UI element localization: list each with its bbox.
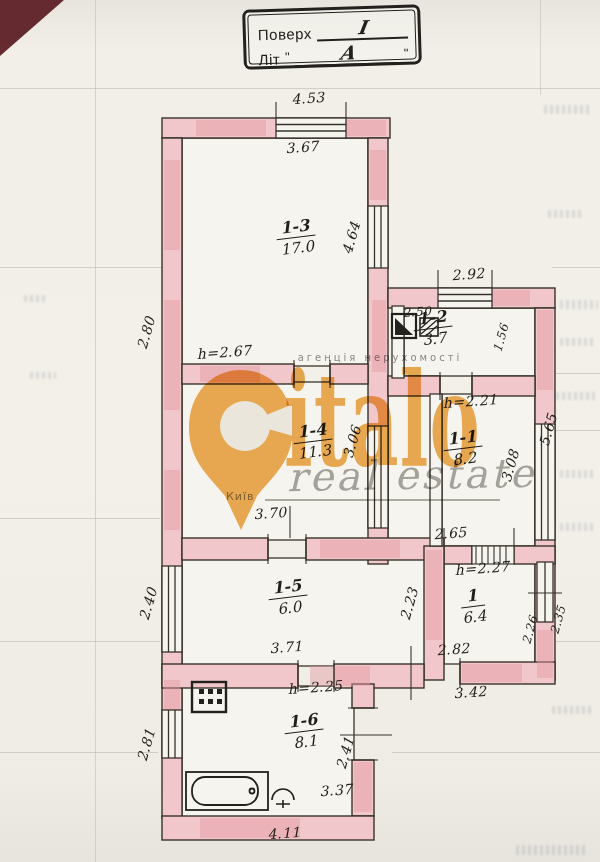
stamp-quote-open: " <box>285 47 290 67</box>
stamp-quote-close: " <box>404 44 409 64</box>
dim-room16-inner: 3.37 <box>319 781 353 799</box>
room-id: 1 <box>459 585 485 609</box>
dim-room1-bottom-outer: 3.42 <box>453 683 487 701</box>
watermark-rule-line <box>265 499 500 501</box>
watermark-tagline: real estate <box>287 450 537 500</box>
sitalo-pin-logo-icon <box>184 366 298 536</box>
room-label-1-5: 1-5 6.0 <box>266 575 309 619</box>
stamp-floor-label: Поверх <box>258 25 312 44</box>
dim-room1-top: 2.65 <box>433 524 467 542</box>
dim-room15-bottom: 3.71 <box>269 638 303 656</box>
stamp-lit-label: Літ <box>258 51 280 69</box>
dim-top-inner: 3.67 <box>285 138 319 156</box>
dim-bottom-outer: 4.11 <box>267 824 301 842</box>
room-area: 6.4 <box>461 606 487 628</box>
dim-top-outer: 4.53 <box>291 89 325 107</box>
dim-room1-bottom-inner: 2.82 <box>436 640 470 658</box>
floor-stamp-box: Поверх I Літ " А " <box>242 4 422 70</box>
scanned-floor-plan-page: 4.53 3.67 4.64 2.92 2.50 1.56 2.80 h=2.6… <box>0 0 600 862</box>
room-label-1-6: 1-6 8.1 <box>282 709 325 753</box>
stamp-floor-value: I <box>356 16 368 38</box>
dim-topright-outer: 2.92 <box>451 265 485 283</box>
room-label-1: 1 6.4 <box>459 585 488 628</box>
stamp-lit-row: Літ " А " <box>258 39 409 69</box>
room-label-1-3: 1-3 17.0 <box>274 215 317 259</box>
stamp-lit-value: А <box>337 41 356 64</box>
watermark-city: Київ <box>226 490 255 503</box>
